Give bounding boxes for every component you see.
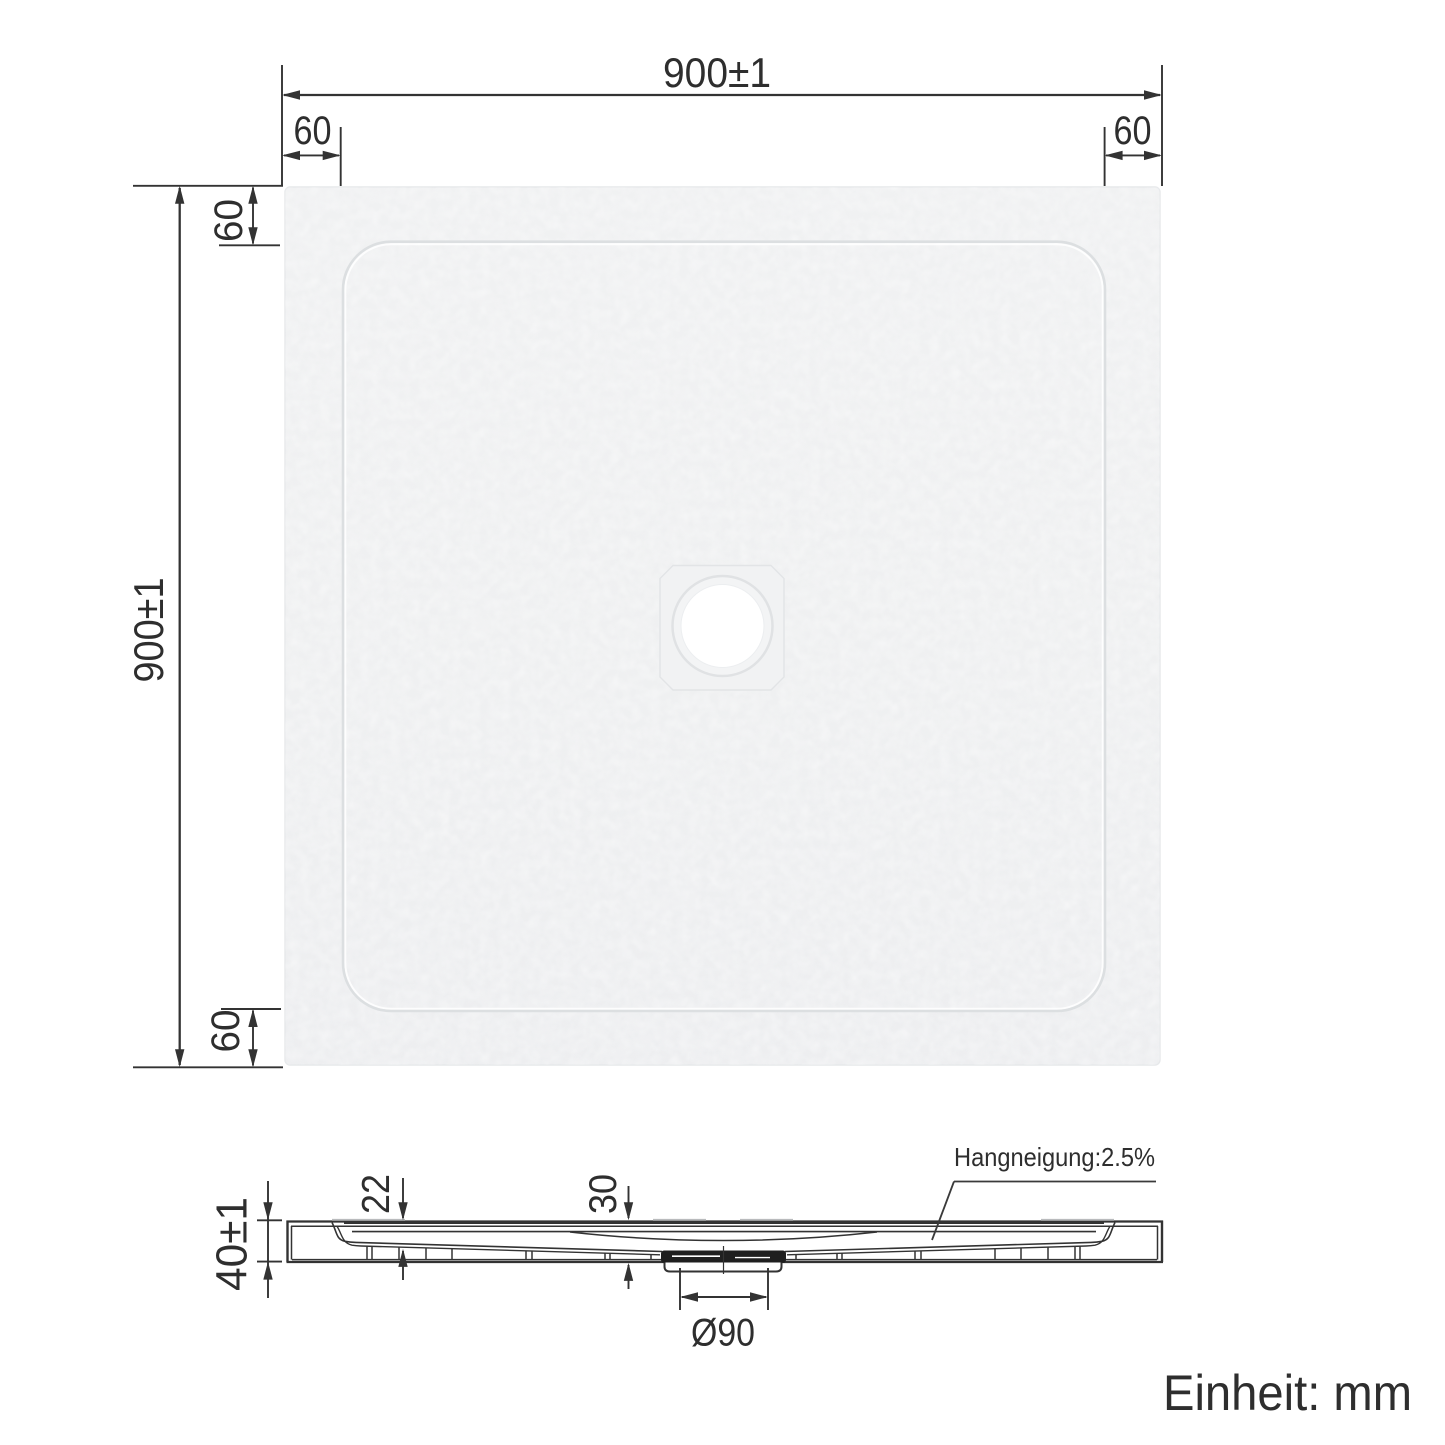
svg-text:60: 60: [294, 109, 332, 153]
svg-text:Ø90: Ø90: [691, 1312, 755, 1355]
svg-text:900±1: 900±1: [663, 49, 771, 96]
svg-text:Hangneigung:2.5%: Hangneigung:2.5%: [954, 1142, 1155, 1172]
svg-text:22: 22: [355, 1174, 398, 1214]
svg-text:60: 60: [1114, 109, 1152, 153]
svg-text:Einheit: mm: Einheit: mm: [1163, 1365, 1412, 1421]
svg-text:900±1: 900±1: [125, 578, 172, 683]
svg-text:60: 60: [204, 1010, 248, 1053]
svg-text:60: 60: [207, 199, 251, 242]
svg-text:40±1: 40±1: [208, 1197, 257, 1291]
svg-text:30: 30: [582, 1174, 625, 1214]
